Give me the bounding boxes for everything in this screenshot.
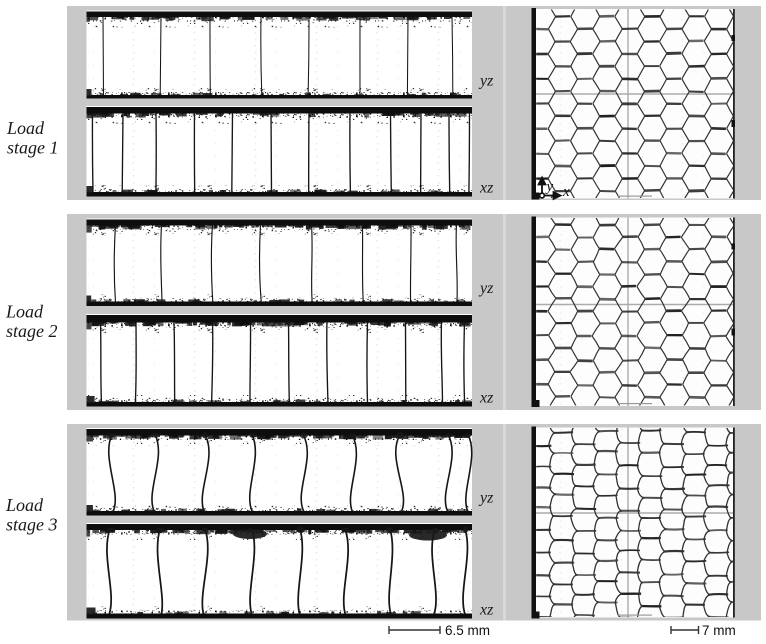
svg-text:xz: xz xyxy=(479,390,494,407)
svg-text:yz: yz xyxy=(478,490,494,507)
svg-text:xz: xz xyxy=(479,602,494,619)
svg-text:stage 2: stage 2 xyxy=(6,321,58,341)
svg-text:Load: Load xyxy=(5,302,44,322)
svg-text:Load: Load xyxy=(5,495,44,515)
svg-text:7 mm: 7 mm xyxy=(702,623,736,638)
svg-text:Load: Load xyxy=(6,118,45,138)
svg-text:x: x xyxy=(562,184,570,200)
svg-text:y: y xyxy=(545,179,554,195)
svg-text:yz: yz xyxy=(478,280,494,297)
svg-text:stage 1: stage 1 xyxy=(7,138,59,158)
svg-text:6.5 mm: 6.5 mm xyxy=(445,623,490,638)
svg-text:xz: xz xyxy=(479,180,494,197)
svg-text:stage 3: stage 3 xyxy=(6,515,58,535)
svg-text:yz: yz xyxy=(478,73,494,90)
